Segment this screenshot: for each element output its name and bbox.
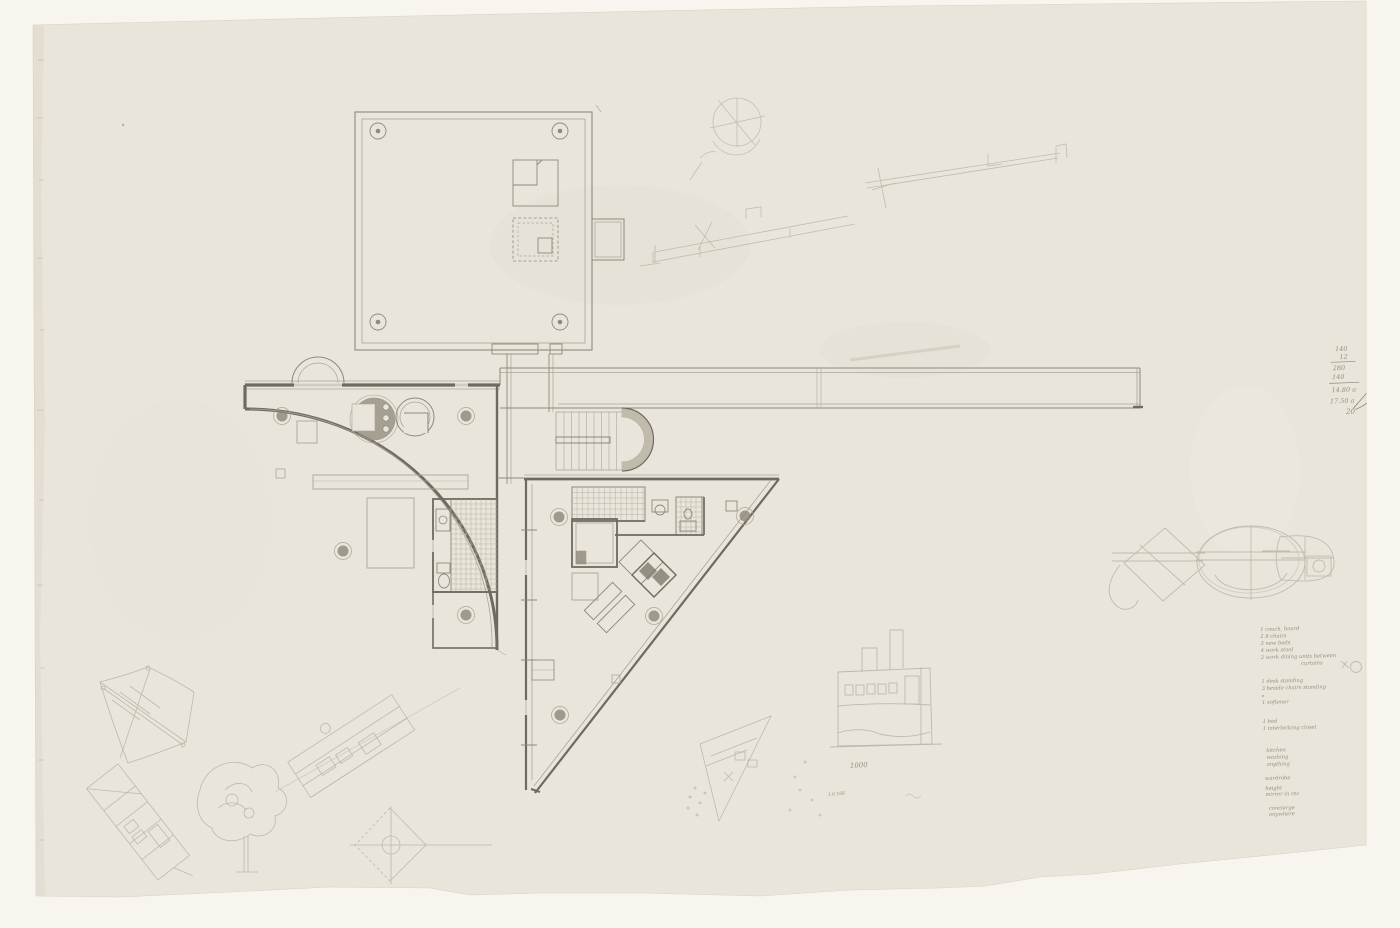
sheet-number: 20	[1345, 408, 1355, 416]
note-line: 1 bed	[1262, 719, 1277, 725]
note-line: 4 work stool	[1260, 647, 1294, 654]
scanned-drawing-sheet: 140 12 280 140 14.80 a 17.50 a 20 1 couc…	[0, 0, 1400, 928]
note-line: 1 desk standing	[1261, 678, 1303, 685]
note-line: kitchen	[1266, 747, 1286, 754]
note-line: anywhere	[1269, 811, 1295, 818]
note-line: 2 8 chairs	[1259, 633, 1287, 640]
note-line: curtains	[1301, 660, 1323, 667]
note-line: 1 softener	[1262, 699, 1289, 706]
calc-line: 17.50 a	[1330, 397, 1355, 406]
note-line: anything	[1267, 761, 1291, 768]
note-line: 3 new beds	[1260, 640, 1290, 647]
hearth-circle	[350, 395, 398, 443]
drawing-svg: 140 12 280 140 14.80 a 17.50 a 20 1 couc…	[0, 0, 1400, 928]
note-line: washing	[1266, 754, 1289, 761]
note-line: 1 couch, board	[1260, 626, 1300, 633]
note-line: mirror in rec	[1265, 791, 1299, 798]
paper-stain	[490, 185, 750, 305]
scatter-number-1000: 1000	[850, 761, 869, 770]
calc-line: 280	[1332, 364, 1346, 372]
paper-stain	[820, 322, 990, 378]
paper-stain	[1190, 385, 1300, 555]
paper-stain	[90, 400, 270, 640]
calc-line: 140	[1332, 373, 1345, 381]
note-line: wardrobe	[1265, 775, 1290, 782]
calc-line: 14.80 a	[1331, 385, 1356, 394]
calc-line: 12	[1339, 353, 1348, 361]
